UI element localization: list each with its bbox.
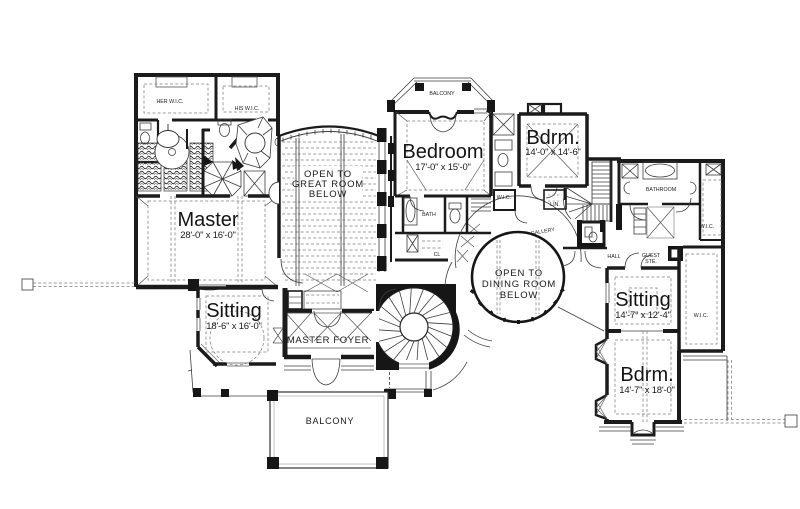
svg-text:W.I.C.: W.I.C. <box>694 313 708 319</box>
svg-text:DINING ROOM: DINING ROOM <box>482 279 556 290</box>
svg-text:18'-6" x 16'-0": 18'-6" x 16'-0" <box>206 321 261 332</box>
svg-text:W.I.C.: W.I.C. <box>497 195 511 201</box>
svg-text:HALL: HALL <box>607 254 620 260</box>
svg-text:28'-0" x 16'-0": 28'-0" x 16'-0" <box>180 230 235 241</box>
svg-text:Sitting: Sitting <box>615 289 671 311</box>
svg-text:BALCONY: BALCONY <box>429 91 455 97</box>
svg-text:OPEN TO: OPEN TO <box>495 268 543 279</box>
svg-text:BALCONY: BALCONY <box>306 416 355 426</box>
svg-text:BELOW: BELOW <box>500 290 538 301</box>
svg-text:STE.: STE. <box>645 259 657 265</box>
svg-text:MASTER FOYER: MASTER FOYER <box>287 335 369 346</box>
svg-text:Sitting: Sitting <box>206 300 262 322</box>
svg-text:HER W.I.C.: HER W.I.C. <box>156 99 183 105</box>
svg-text:BATH: BATH <box>422 212 436 218</box>
svg-text:14'-0" x 14'-6": 14'-0" x 14'-6" <box>525 147 580 158</box>
svg-text:BELOW: BELOW <box>309 189 347 200</box>
svg-text:Master: Master <box>177 209 238 231</box>
svg-text:W.I.C.: W.I.C. <box>700 224 714 230</box>
svg-text:BATHROOM: BATHROOM <box>646 187 676 193</box>
svg-text:LIN.: LIN. <box>550 202 560 208</box>
svg-text:Bdrm.: Bdrm. <box>526 127 579 149</box>
svg-text:Bedroom: Bedroom <box>402 141 483 163</box>
svg-text:HIS W.I.C.: HIS W.I.C. <box>235 106 260 112</box>
svg-text:14'-7" x 12'-4": 14'-7" x 12'-4" <box>615 310 670 321</box>
svg-text:Bdrm.: Bdrm. <box>620 364 673 386</box>
svg-text:14'-7" x 18'-0": 14'-7" x 18'-0" <box>619 385 674 396</box>
svg-text:CL: CL <box>434 252 441 258</box>
svg-text:17'-0" x 15'-0": 17'-0" x 15'-0" <box>415 162 470 173</box>
